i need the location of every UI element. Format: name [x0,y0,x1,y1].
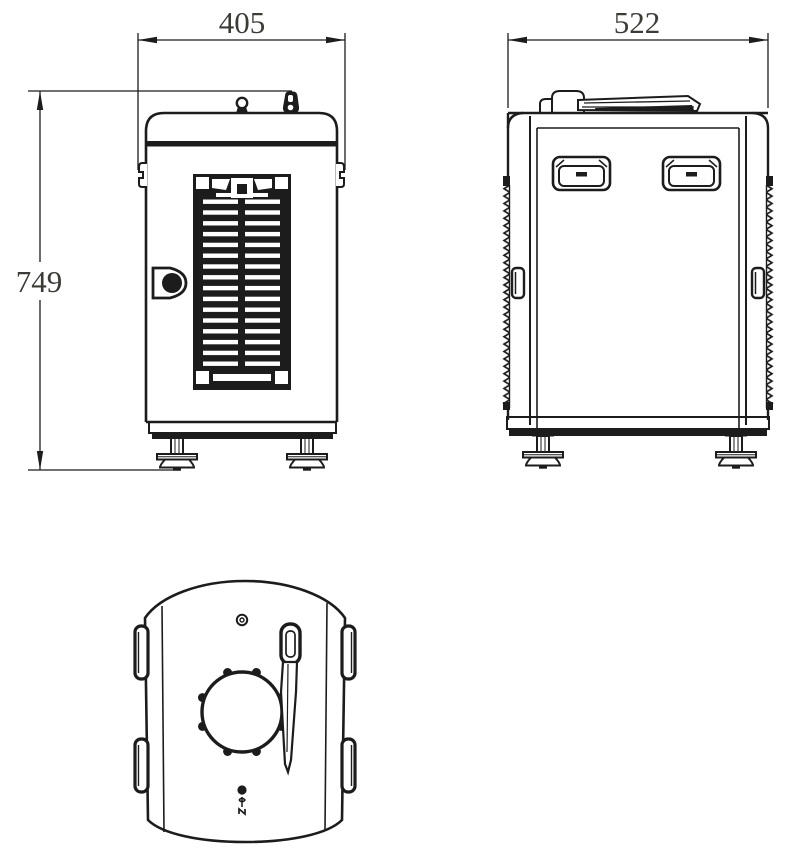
pillar-slot-handle [752,268,764,298]
foot [157,434,197,471]
side-tab [342,626,355,679]
front-grille [193,174,291,390]
side-tab [135,626,148,679]
technical-drawing-page: 405 749 522 [0,0,800,863]
foot [716,432,756,469]
top-knob [236,98,248,113]
side-latch-right [336,163,344,187]
arrowhead-left [138,37,157,43]
arrowhead-bottom [37,451,43,470]
top-view [135,581,355,842]
side-tab [342,739,355,792]
folded-handle [540,91,700,113]
drawing-canvas: 405 749 522 [0,0,800,863]
arrowhead-top [37,91,43,110]
top-screw [237,615,247,625]
arrowhead-right [326,37,345,43]
pillar-slot-handle [512,268,524,298]
front-view [139,92,344,471]
latch [663,157,720,190]
foot [287,434,327,471]
side-latch-left [139,163,147,187]
dim-label-front-width: 405 [219,5,266,40]
dim-label-side-width: 522 [614,5,661,40]
side-view [502,91,774,469]
latch [553,157,610,190]
side-tab [135,739,148,792]
cap-seam [146,141,337,147]
top-right-latch [283,92,299,114]
front-port [153,268,186,298]
arrowhead-left [508,37,527,43]
arrowhead-right [749,37,768,43]
dim-label-front-height: 749 [16,264,63,299]
dim-side-width: 522 [508,5,768,108]
foot [523,432,563,469]
extension-lines [508,33,768,108]
